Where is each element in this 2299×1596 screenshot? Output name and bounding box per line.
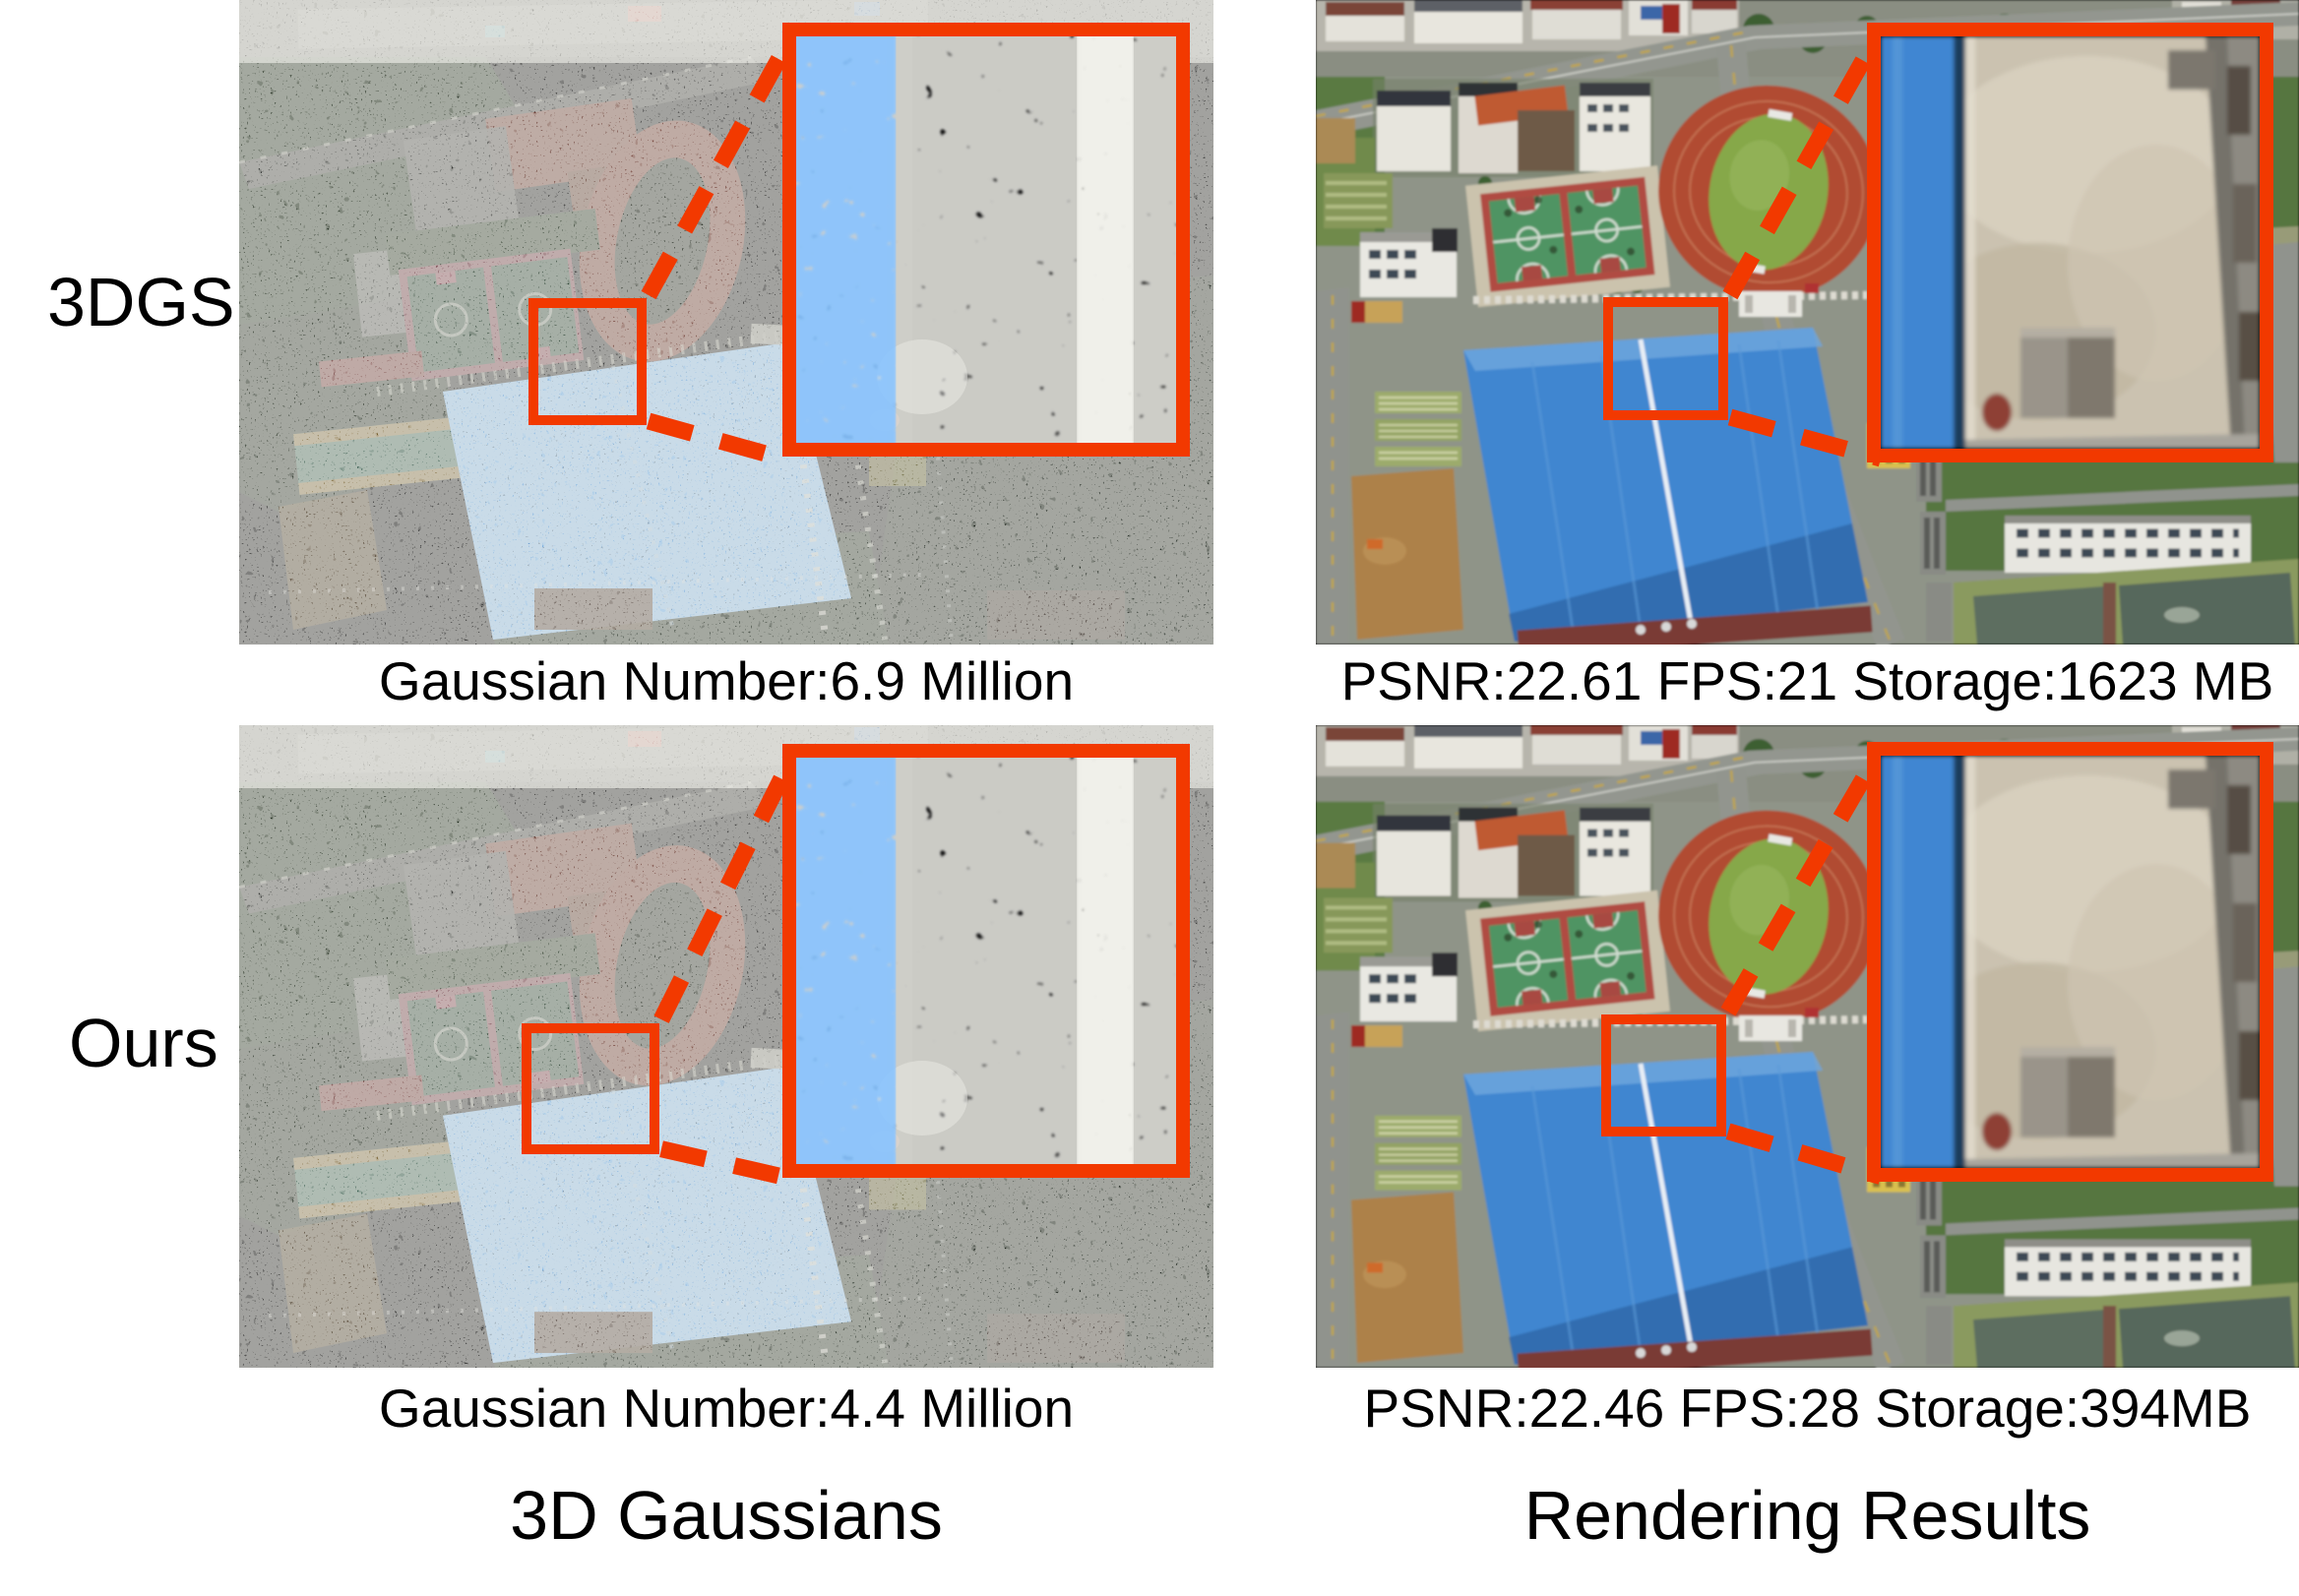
rendering-panel-3dgs (1316, 0, 2299, 645)
zoom-source-box (1603, 297, 1728, 420)
zoom-source-box (528, 298, 647, 425)
pointcloud-panel-ours (239, 725, 1213, 1368)
rendering-panel-ours (1316, 725, 2299, 1368)
zoom-inset (782, 23, 1190, 457)
column-title-3d-gaussians: 3D Gaussians (239, 1466, 1213, 1565)
zoom-inset (1867, 742, 2273, 1182)
column-title-rendering-results: Rendering Results (1316, 1466, 2299, 1565)
method-label-3dgs: 3DGS (47, 268, 235, 337)
comparison-figure: 3DGS Ours Gaussian Number:6.9 Million PS… (0, 0, 2299, 1596)
method-label-ours: Ours (69, 1009, 218, 1077)
zoom-inset (782, 744, 1190, 1178)
zoom-source-box (1601, 1014, 1726, 1136)
zoom-inset (1867, 23, 2273, 462)
zoom-source-box (522, 1023, 659, 1154)
gaussian-count-caption-ours: Gaussian Number:4.4 Million (239, 1370, 1213, 1446)
gaussian-count-caption-3dgs: Gaussian Number:6.9 Million (239, 643, 1213, 719)
metrics-caption-3dgs: PSNR:22.61 FPS:21 Storage:1623 MB (1316, 643, 2299, 719)
pointcloud-panel-3dgs (239, 0, 1213, 645)
metrics-caption-ours: PSNR:22.46 FPS:28 Storage:394MB (1316, 1370, 2299, 1446)
